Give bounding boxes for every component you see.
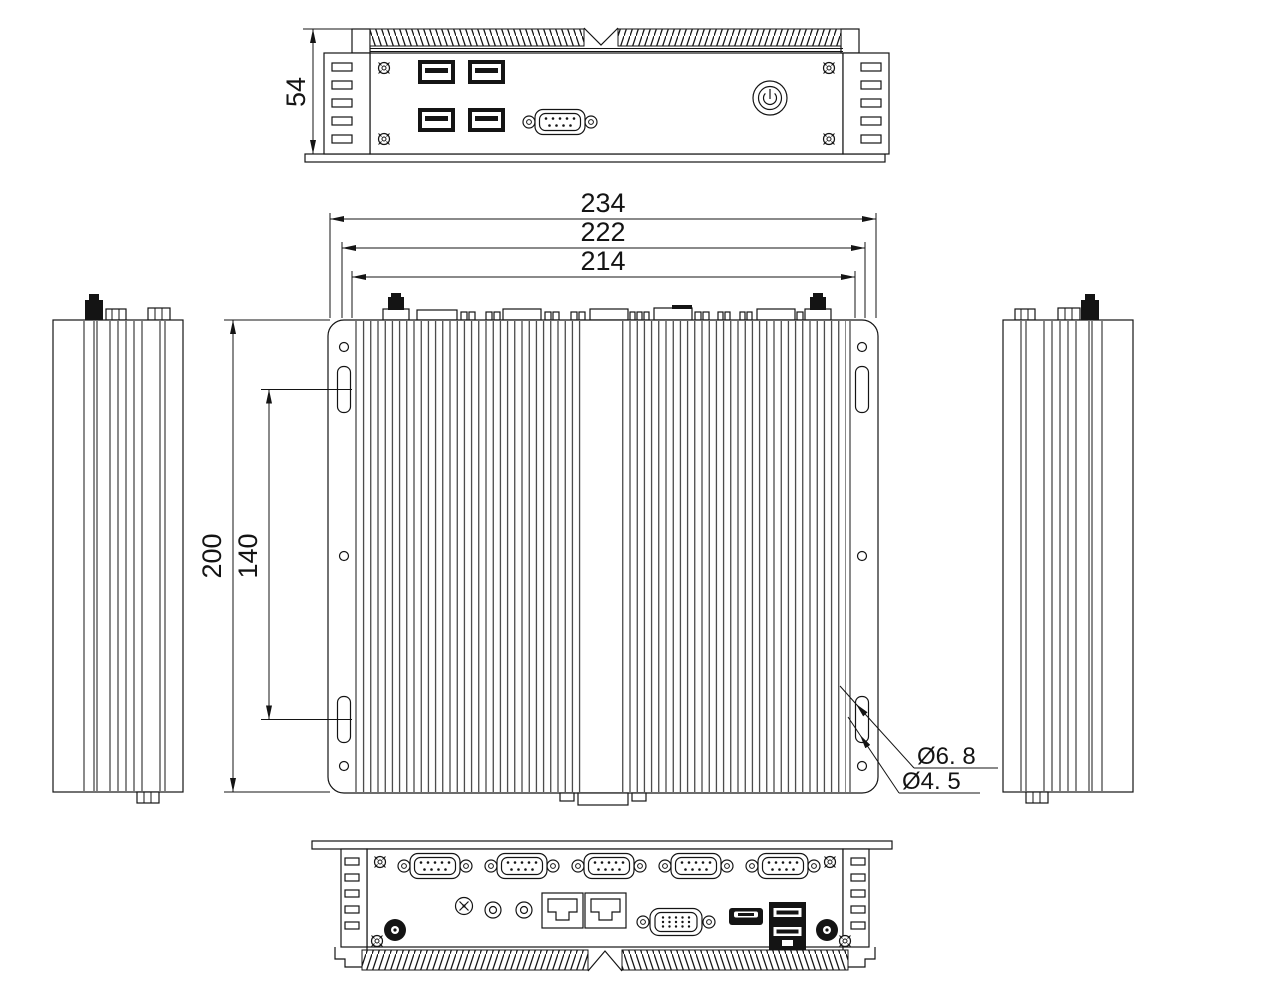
usb-port-icon (468, 108, 505, 132)
screw-icon (375, 857, 386, 868)
antenna-connector-icon (816, 919, 838, 941)
rj45-lan-icon (542, 893, 583, 928)
usb-stack-icon (769, 902, 806, 950)
screw-hole (340, 343, 349, 352)
heatsink-notch (588, 951, 622, 971)
mounting-keyhole-slot (856, 367, 869, 413)
antenna-connector-icon (1081, 300, 1099, 320)
dim-label-hole-dia: Ø4. 5 (902, 768, 961, 795)
rj45-lan-icon (585, 893, 626, 928)
mounting-keyhole-slot (856, 697, 869, 743)
usb-port-icon (468, 60, 505, 84)
dim-label-222: 222 (580, 217, 625, 247)
screw-hole (858, 343, 867, 352)
cooling-fins (358, 321, 582, 792)
screw-hole (858, 762, 867, 771)
dim-label-234: 234 (580, 188, 625, 218)
technical-drawing: 54 234 222 214 (0, 0, 1268, 1006)
hdmi-port-icon (729, 908, 763, 925)
heatsink-hatch (362, 950, 588, 970)
heatsink-hatch (618, 29, 841, 46)
screw-hole (858, 552, 867, 561)
screw-icon (840, 936, 851, 947)
corner-post (352, 29, 370, 53)
width-dimensions: 234 222 214 (330, 188, 876, 318)
dim-label-214: 214 (580, 246, 625, 276)
screw-icon (372, 936, 383, 947)
base-plate-edge (305, 154, 885, 162)
side-fins-left (335, 849, 367, 967)
dim-label-140: 140 (233, 533, 263, 578)
side-fins-right (843, 53, 889, 154)
dim-label-200: 200 (197, 533, 227, 578)
usb-port-icon (418, 60, 455, 84)
left-side-view (53, 294, 183, 803)
dc-power-jack-icon (456, 898, 473, 915)
screw-icon (824, 134, 835, 145)
power-button-icon (753, 81, 787, 115)
audio-jack-icon (516, 902, 532, 918)
usb-port-icon (418, 108, 455, 132)
right-side-view (1003, 294, 1133, 803)
corner-post (841, 29, 859, 53)
rear-panel-view (312, 841, 892, 971)
side-fins-left (324, 53, 370, 154)
screw-hole (340, 762, 349, 771)
screw-icon (379, 134, 390, 145)
dim-label-54: 54 (281, 77, 311, 107)
rear-connectors-top-profile (383, 293, 831, 320)
side-fins-right (843, 849, 875, 967)
front-panel-view: 54 (281, 28, 889, 162)
heatsink-hatch (370, 29, 584, 46)
screw-icon (825, 857, 836, 868)
heatsink-hatch (622, 950, 848, 970)
top-plan-view: 200 140 Ø6. 8 Ø4. 5 (197, 293, 998, 805)
antenna-connector-icon (85, 300, 103, 320)
heatsink-notch (584, 28, 618, 45)
cooling-fins (622, 321, 846, 792)
base-plate-edge (312, 841, 892, 849)
screw-icon (824, 63, 835, 74)
dim-label-slot-dia: Ø6. 8 (917, 743, 976, 770)
antenna-connector-icon (384, 919, 406, 941)
audio-jack-icon (485, 902, 501, 918)
screw-hole (340, 552, 349, 561)
screw-icon (379, 63, 390, 74)
